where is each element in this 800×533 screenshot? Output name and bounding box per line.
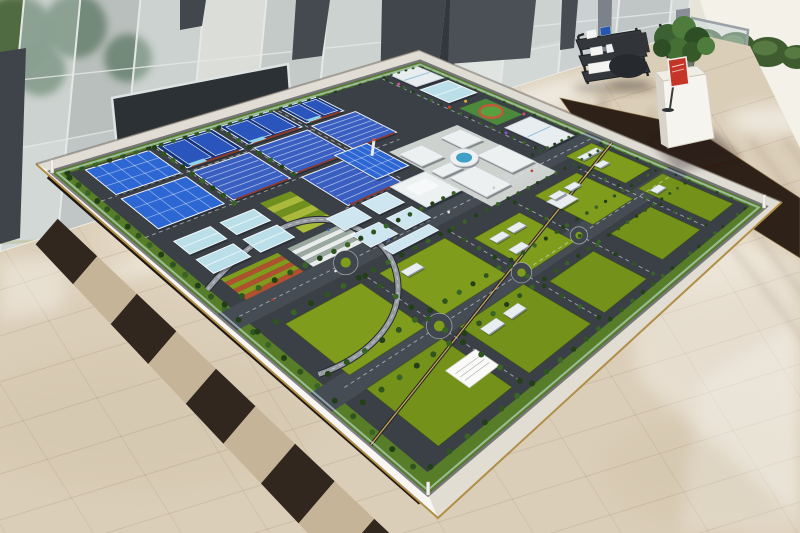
model-tree [371, 267, 377, 273]
model-tree [439, 103, 442, 106]
model-tree [721, 225, 724, 228]
model-tree [644, 209, 647, 212]
model-tree [617, 184, 620, 187]
model-tree [272, 277, 278, 283]
glass-corner-post-e [763, 195, 766, 208]
model-tree [490, 126, 493, 129]
model-tree [399, 252, 404, 257]
model-tree [604, 145, 607, 148]
model-tree [308, 300, 314, 306]
model-tree [553, 143, 556, 146]
model-tree [340, 283, 346, 289]
model-tree [345, 242, 350, 247]
model-tree [324, 291, 330, 297]
model-tree [596, 326, 601, 331]
model-tree [76, 182, 82, 188]
model-car [271, 298, 274, 301]
model-tree [595, 243, 599, 247]
model-car [531, 169, 534, 172]
roundabout-island [341, 258, 351, 268]
model-tree [350, 413, 356, 419]
model-tree [216, 126, 221, 131]
model-tree [511, 136, 514, 139]
model-tree [504, 302, 509, 307]
model-tree [484, 273, 489, 278]
model-tree [560, 294, 565, 299]
model-tree [379, 337, 385, 343]
model-tree [460, 339, 466, 345]
model-tree [622, 189, 625, 192]
model-tree [158, 252, 164, 258]
model-tree [236, 317, 242, 323]
model-tree [469, 116, 472, 119]
model-tree [544, 236, 548, 240]
poster-stand-base [662, 108, 674, 112]
model-tree [379, 387, 385, 393]
model-tree [297, 369, 303, 375]
model-tree [377, 283, 383, 289]
model-tree [578, 304, 583, 309]
model-tree [517, 191, 521, 195]
model-tree [409, 304, 415, 310]
roundabout-island [517, 268, 525, 276]
model-tree [509, 258, 514, 263]
model-tree [476, 320, 482, 326]
glass-corner-post-w [51, 160, 54, 173]
model-tree [652, 203, 655, 206]
ring-courtyard-pool [456, 153, 472, 163]
model-tree [638, 179, 641, 182]
model-tree [530, 285, 535, 290]
model-tree [630, 299, 634, 303]
model-tree [674, 210, 677, 213]
model-tree [485, 208, 489, 212]
model-tree [314, 383, 320, 389]
model-tree [257, 151, 262, 156]
model-tree [273, 319, 279, 325]
model-tree [590, 172, 593, 175]
model-tree [369, 429, 375, 435]
model-tree [558, 357, 564, 363]
model-tree [608, 317, 613, 322]
lobby-photo-scene [0, 0, 800, 533]
model-tree [147, 242, 153, 248]
model-tree [563, 167, 566, 170]
model-tree [427, 307, 433, 313]
model-tree [425, 316, 431, 322]
model-tree [544, 369, 550, 375]
model-tree [362, 273, 368, 279]
model-tree [180, 164, 185, 169]
model-tree [356, 275, 362, 281]
model-tree [441, 196, 445, 200]
model-tree [565, 261, 569, 265]
model-tree [659, 203, 662, 206]
model-tree [182, 272, 188, 278]
model-tree [125, 224, 131, 230]
model-tree [396, 218, 401, 223]
signage-accent-dot [505, 131, 508, 134]
model-tree [426, 239, 431, 244]
model-tree [500, 131, 503, 134]
model-car [327, 228, 330, 231]
model-tree [85, 190, 91, 196]
chimney-tip [372, 138, 375, 141]
model-tree [584, 336, 589, 341]
model-tree [104, 206, 110, 212]
model-tree [542, 277, 547, 282]
brochure [600, 26, 611, 36]
model-car [260, 240, 263, 243]
model-tree [596, 149, 599, 152]
model-tree [221, 193, 226, 198]
red-poster-sign [668, 57, 689, 87]
model-tree [630, 184, 633, 187]
model-tree [396, 327, 402, 333]
chair-seat [609, 54, 647, 78]
model-tree [545, 176, 548, 179]
model-tree [462, 219, 466, 223]
model-tree [704, 224, 707, 227]
model-tree [528, 208, 532, 212]
model-tree [280, 165, 285, 170]
model-tree [459, 112, 462, 115]
model-tree [389, 446, 395, 452]
signage-accent-dot [522, 112, 525, 115]
model-tree [689, 217, 692, 220]
model-tree [616, 227, 620, 231]
model-tree [427, 464, 433, 470]
hedge-highlight [752, 41, 777, 56]
model-tree [114, 215, 120, 221]
model-tree [281, 355, 287, 361]
model-tree [452, 191, 456, 195]
model-tree [697, 245, 700, 248]
model-tree [411, 90, 414, 93]
model-tree [447, 229, 452, 234]
model-tree [651, 272, 655, 276]
model-tree [239, 293, 245, 299]
model-tree [236, 138, 241, 143]
glass-corner-post-s [427, 482, 430, 495]
model-tree [190, 171, 195, 176]
model-tree [645, 196, 648, 199]
model-tree [613, 194, 616, 197]
model-tree [514, 393, 520, 399]
model-tree [654, 169, 657, 172]
model-tree [332, 398, 338, 404]
model-tree [464, 433, 470, 439]
model-tree [385, 260, 390, 265]
model-tree [462, 237, 467, 242]
model-tree [397, 374, 403, 380]
model-tree [331, 249, 337, 255]
signage-accent-dot [397, 83, 400, 86]
model-tree [646, 174, 649, 177]
model-tree [604, 200, 607, 203]
model-tree [403, 86, 406, 89]
model-tree [676, 187, 679, 190]
model-tree [660, 197, 663, 200]
model-tree [302, 262, 308, 268]
model-tree [408, 212, 413, 217]
model-tree [595, 205, 599, 209]
brochure [590, 46, 603, 56]
model-tree [412, 317, 418, 323]
model-tree [462, 330, 468, 336]
model-tree [256, 285, 262, 291]
model-tree [661, 274, 665, 278]
model-tree [170, 158, 175, 163]
model-tree [474, 213, 478, 217]
model-tree [317, 255, 323, 261]
model-tree [576, 254, 580, 258]
model-tree [517, 293, 522, 298]
model-tree [442, 327, 448, 333]
model-tree [394, 82, 397, 85]
model-tree [587, 247, 591, 251]
model-tree [538, 150, 541, 153]
model-tree [421, 94, 424, 97]
model-tree [208, 294, 214, 300]
model-tree [498, 406, 504, 412]
model-tree [430, 99, 433, 102]
model-tree [291, 172, 296, 177]
model-tree [613, 252, 617, 256]
model-tree [534, 146, 537, 149]
model-tree [607, 233, 611, 237]
model-tree [626, 220, 630, 224]
model-tree [358, 236, 363, 241]
model-tree [265, 342, 271, 348]
model-tree [291, 309, 297, 315]
model-tree [222, 301, 228, 307]
model-tree [736, 213, 739, 216]
model-tree [490, 311, 495, 316]
model-tree [371, 230, 376, 235]
model-tree [619, 307, 624, 312]
model-tree [560, 139, 563, 142]
model-tree [479, 121, 482, 124]
model-tree [384, 224, 389, 229]
model-tree [578, 166, 581, 169]
model-tree [670, 266, 674, 270]
signage-accent-dot [448, 106, 451, 109]
model-tree [580, 158, 583, 161]
model-tree [635, 214, 638, 217]
model-tree [152, 145, 157, 150]
model-tree [588, 154, 591, 157]
model-car [334, 270, 337, 273]
model-tree [596, 315, 601, 320]
model-tree [526, 186, 530, 190]
model-tree [508, 264, 513, 269]
model-tree [287, 270, 293, 276]
brochure [586, 29, 597, 39]
signage-accent-dot [464, 100, 467, 103]
running-track [480, 105, 503, 118]
model-tree [344, 359, 350, 365]
potted-plant-foliage [697, 37, 715, 55]
model-tree [604, 178, 607, 181]
model-tree [385, 78, 388, 81]
model-tree [410, 464, 416, 470]
model-car [493, 186, 496, 189]
model-tree [544, 217, 548, 221]
model-tree [247, 144, 252, 149]
model-tree [585, 211, 589, 215]
model-tree [482, 419, 488, 425]
chair-shadow [608, 79, 652, 89]
model-tree [522, 141, 525, 144]
model-tree [561, 225, 565, 229]
model-tree [631, 190, 634, 193]
model-tree [496, 202, 500, 206]
model-tree [430, 351, 436, 357]
model-tree [713, 231, 716, 234]
chimney-tower [372, 140, 374, 156]
model-tree [414, 363, 420, 369]
model-tree [531, 153, 534, 156]
model-tree [513, 200, 517, 204]
model-tree [492, 255, 497, 260]
column [448, 0, 536, 64]
model-tree [533, 243, 537, 247]
model-tree [325, 371, 331, 377]
model-tree [565, 223, 569, 227]
model-tree [67, 175, 73, 181]
model-tree [571, 347, 576, 352]
model-tree [232, 200, 237, 205]
model-tree [506, 197, 510, 201]
model-tree [641, 290, 645, 294]
model-tree [446, 448, 452, 454]
model-tree [430, 201, 434, 205]
model-tree [200, 178, 205, 183]
model-tree [438, 232, 443, 237]
model-tree [360, 399, 366, 405]
model-tree [94, 198, 100, 204]
model-tree [555, 230, 559, 234]
model-tree [210, 185, 215, 190]
model-tree [170, 262, 176, 268]
model-tree [729, 219, 732, 222]
model-car [447, 211, 450, 214]
model-tree [574, 133, 577, 136]
model-tree [470, 281, 475, 286]
model-tree [575, 217, 579, 221]
model-tree [226, 132, 231, 137]
model-tree [393, 294, 399, 300]
model-tree [567, 136, 570, 139]
model-tree [268, 158, 273, 163]
model-tree [554, 171, 557, 174]
model-tree [578, 234, 582, 238]
model-tree [442, 298, 447, 303]
model-tree [536, 181, 540, 185]
model-tree [546, 146, 549, 149]
model-tree [680, 259, 684, 263]
model-tree [684, 182, 687, 185]
model-tree [632, 262, 636, 266]
model-tree [521, 250, 525, 254]
model-tree [195, 283, 201, 289]
model-tree [497, 364, 503, 370]
model-tree [136, 233, 142, 239]
model-tree [743, 207, 746, 210]
potted-plant-foliage [653, 39, 671, 57]
model-tree [362, 348, 368, 354]
model-tree [413, 245, 418, 250]
model-tree [254, 329, 260, 335]
model-tree [529, 380, 535, 386]
model-tree [525, 274, 530, 279]
model-car [387, 238, 390, 241]
model-tree [477, 246, 482, 251]
model-tree [517, 378, 523, 384]
model-tree [446, 341, 452, 347]
model-tree [554, 269, 558, 273]
model-tree [668, 192, 671, 195]
model-tree [497, 265, 502, 270]
scene-canvas [0, 0, 800, 533]
model-tree [651, 282, 655, 286]
model-tree [572, 162, 575, 165]
model-tree [451, 226, 456, 231]
model-tree [457, 290, 462, 295]
model-tree [478, 351, 484, 357]
model-tree [419, 207, 423, 211]
model-tree [161, 151, 166, 156]
model-tree [688, 252, 692, 256]
model-tree [542, 283, 547, 288]
model-tree [705, 238, 708, 241]
